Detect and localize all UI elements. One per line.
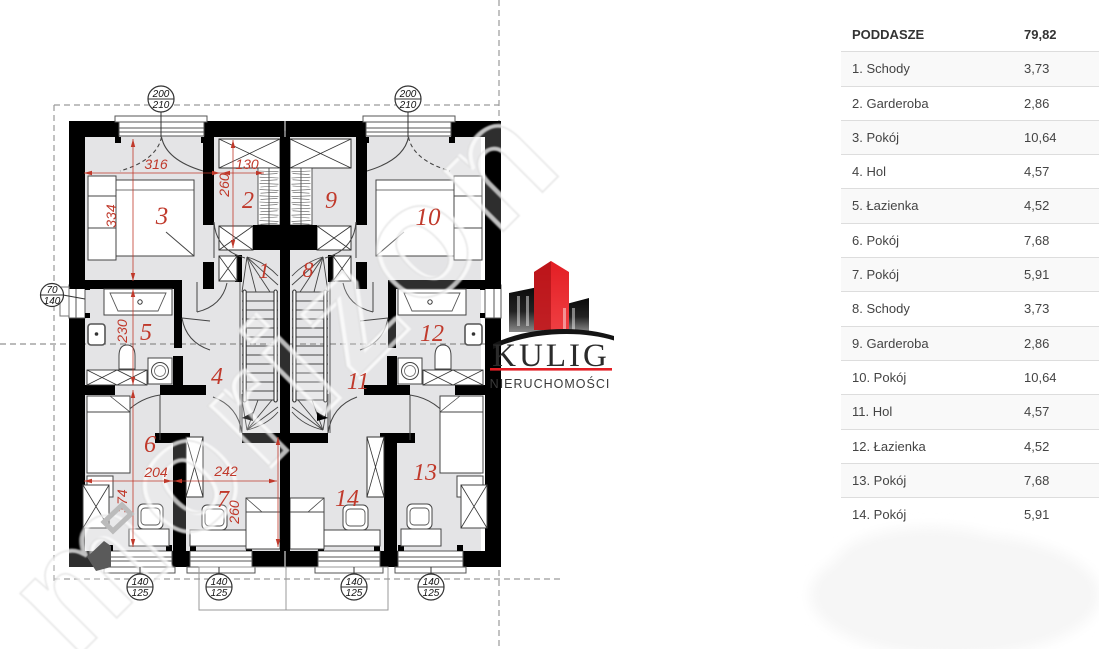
svg-text:200: 200 (152, 89, 170, 100)
svg-text:4: 4 (211, 364, 223, 390)
svg-text:11: 11 (347, 369, 369, 395)
svg-text:242: 242 (213, 463, 238, 479)
svg-text:NIERUCHOMOŚCI: NIERUCHOMOŚCI (490, 376, 611, 391)
svg-text:125: 125 (132, 588, 149, 599)
svg-text:334: 334 (103, 204, 119, 228)
svg-text:70: 70 (46, 285, 58, 296)
svg-text:210: 210 (152, 100, 170, 111)
svg-text:9: 9 (325, 188, 337, 214)
svg-text:125: 125 (346, 588, 363, 599)
svg-text:140: 140 (44, 296, 61, 307)
svg-text:140: 140 (423, 577, 440, 588)
svg-text:2: 2 (242, 188, 254, 214)
svg-text:13: 13 (413, 460, 437, 486)
svg-text:210: 210 (399, 100, 417, 111)
svg-text:3: 3 (155, 203, 169, 230)
svg-text:140: 140 (211, 577, 228, 588)
svg-text:125: 125 (423, 588, 440, 599)
svg-text:125: 125 (211, 588, 228, 599)
svg-text:7: 7 (217, 487, 230, 513)
svg-text:140: 140 (346, 577, 363, 588)
svg-text:130: 130 (235, 156, 259, 172)
svg-text:260: 260 (216, 173, 232, 198)
svg-text:316: 316 (144, 156, 168, 172)
svg-text:10: 10 (416, 204, 442, 231)
svg-text:5: 5 (140, 320, 152, 346)
svg-text:8: 8 (303, 257, 314, 282)
svg-text:230: 230 (114, 319, 130, 344)
svg-text:140: 140 (132, 577, 149, 588)
svg-text:1: 1 (259, 258, 270, 283)
svg-text:6: 6 (144, 432, 156, 458)
svg-text:200: 200 (399, 89, 417, 100)
svg-text:14: 14 (335, 486, 359, 512)
svg-text:204: 204 (143, 464, 168, 480)
svg-text:12: 12 (420, 321, 444, 347)
